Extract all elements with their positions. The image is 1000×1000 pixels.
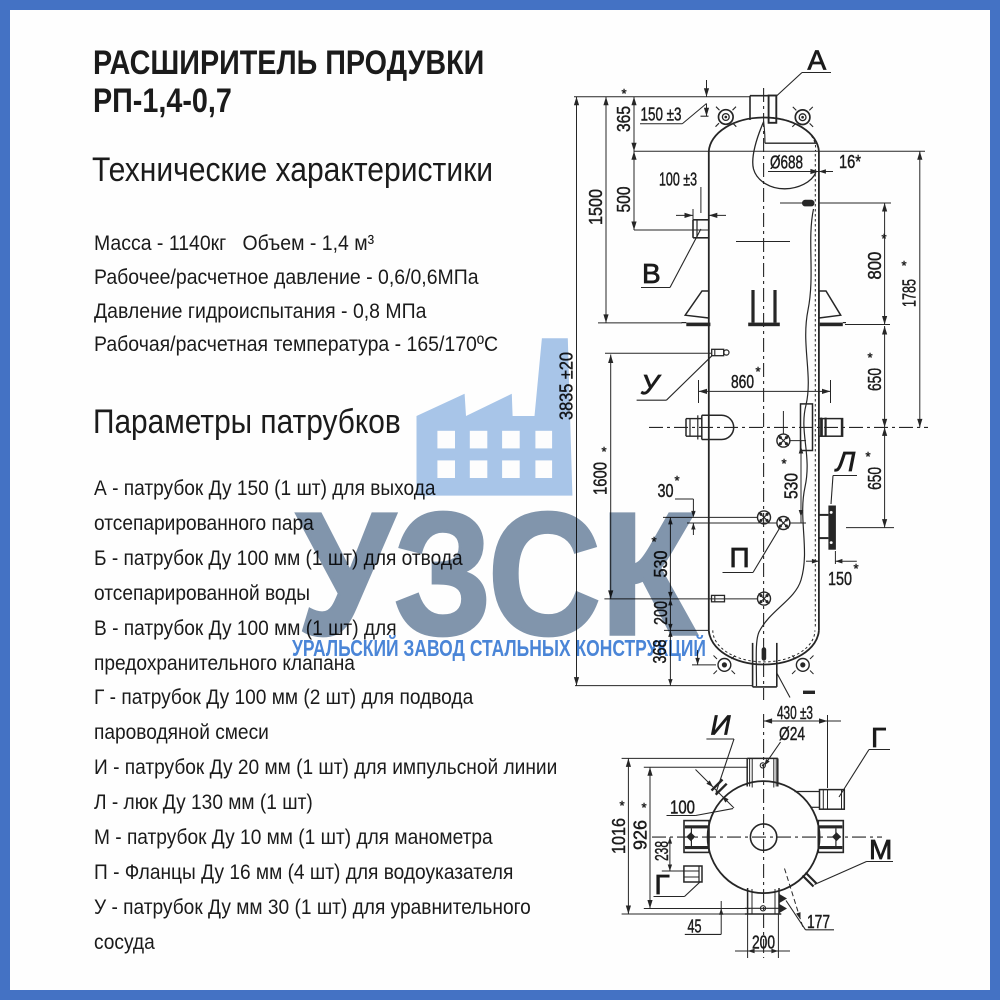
svg-text:Г: Г	[655, 869, 670, 900]
svg-text:*: *	[867, 350, 872, 365]
svg-text:860: 860	[731, 371, 754, 392]
svg-text:*: *	[621, 86, 626, 101]
svg-text:П: П	[730, 542, 750, 573]
svg-text:650: 650	[864, 368, 885, 391]
svg-text:430 ±3: 430 ±3	[777, 702, 813, 723]
svg-text:100 ±3: 100 ±3	[659, 169, 697, 190]
svg-text:150 ±3: 150 ±3	[641, 104, 682, 125]
svg-text:*: *	[853, 561, 858, 576]
svg-text:100: 100	[670, 797, 695, 818]
svg-text:В: В	[642, 258, 661, 289]
svg-text:УРАЛЬСКИЙ ЗАВОД СТАЛЬНЫХ КОНСТ: УРАЛЬСКИЙ ЗАВОД СТАЛЬНЫХ КОНСТРУКЦИЙ	[292, 634, 706, 661]
svg-text:1500: 1500	[585, 189, 606, 225]
svg-text:150: 150	[828, 568, 852, 589]
svg-text:*: *	[641, 800, 646, 815]
svg-text:365: 365	[613, 106, 634, 132]
svg-text:1016: 1016	[608, 818, 629, 854]
svg-text:А: А	[808, 45, 827, 76]
svg-text:*: *	[755, 364, 760, 379]
svg-text:Ø24: Ø24	[779, 723, 805, 744]
svg-text:200: 200	[752, 932, 775, 953]
svg-text:926: 926	[630, 820, 651, 850]
svg-text:Г: Г	[871, 722, 886, 753]
svg-text:Ø688: Ø688	[770, 152, 803, 173]
svg-text:500: 500	[613, 187, 634, 213]
svg-text:М: М	[869, 834, 892, 865]
svg-text:И: И	[711, 710, 732, 741]
svg-text:177: 177	[807, 911, 830, 932]
svg-text:800: 800	[864, 252, 885, 280]
svg-text:530: 530	[780, 473, 801, 499]
svg-text:*: *	[901, 258, 906, 273]
svg-text:238: 238	[651, 841, 672, 861]
svg-text:45: 45	[688, 916, 702, 937]
svg-text:*: *	[865, 449, 870, 464]
svg-text:*: *	[619, 798, 624, 813]
svg-text:Л: Л	[834, 446, 856, 477]
svg-text:*: *	[781, 456, 786, 471]
svg-text:16*: 16*	[839, 151, 861, 172]
svg-text:*: *	[881, 231, 886, 246]
svg-text:650: 650	[864, 467, 885, 490]
svg-text:1785: 1785	[899, 279, 920, 307]
